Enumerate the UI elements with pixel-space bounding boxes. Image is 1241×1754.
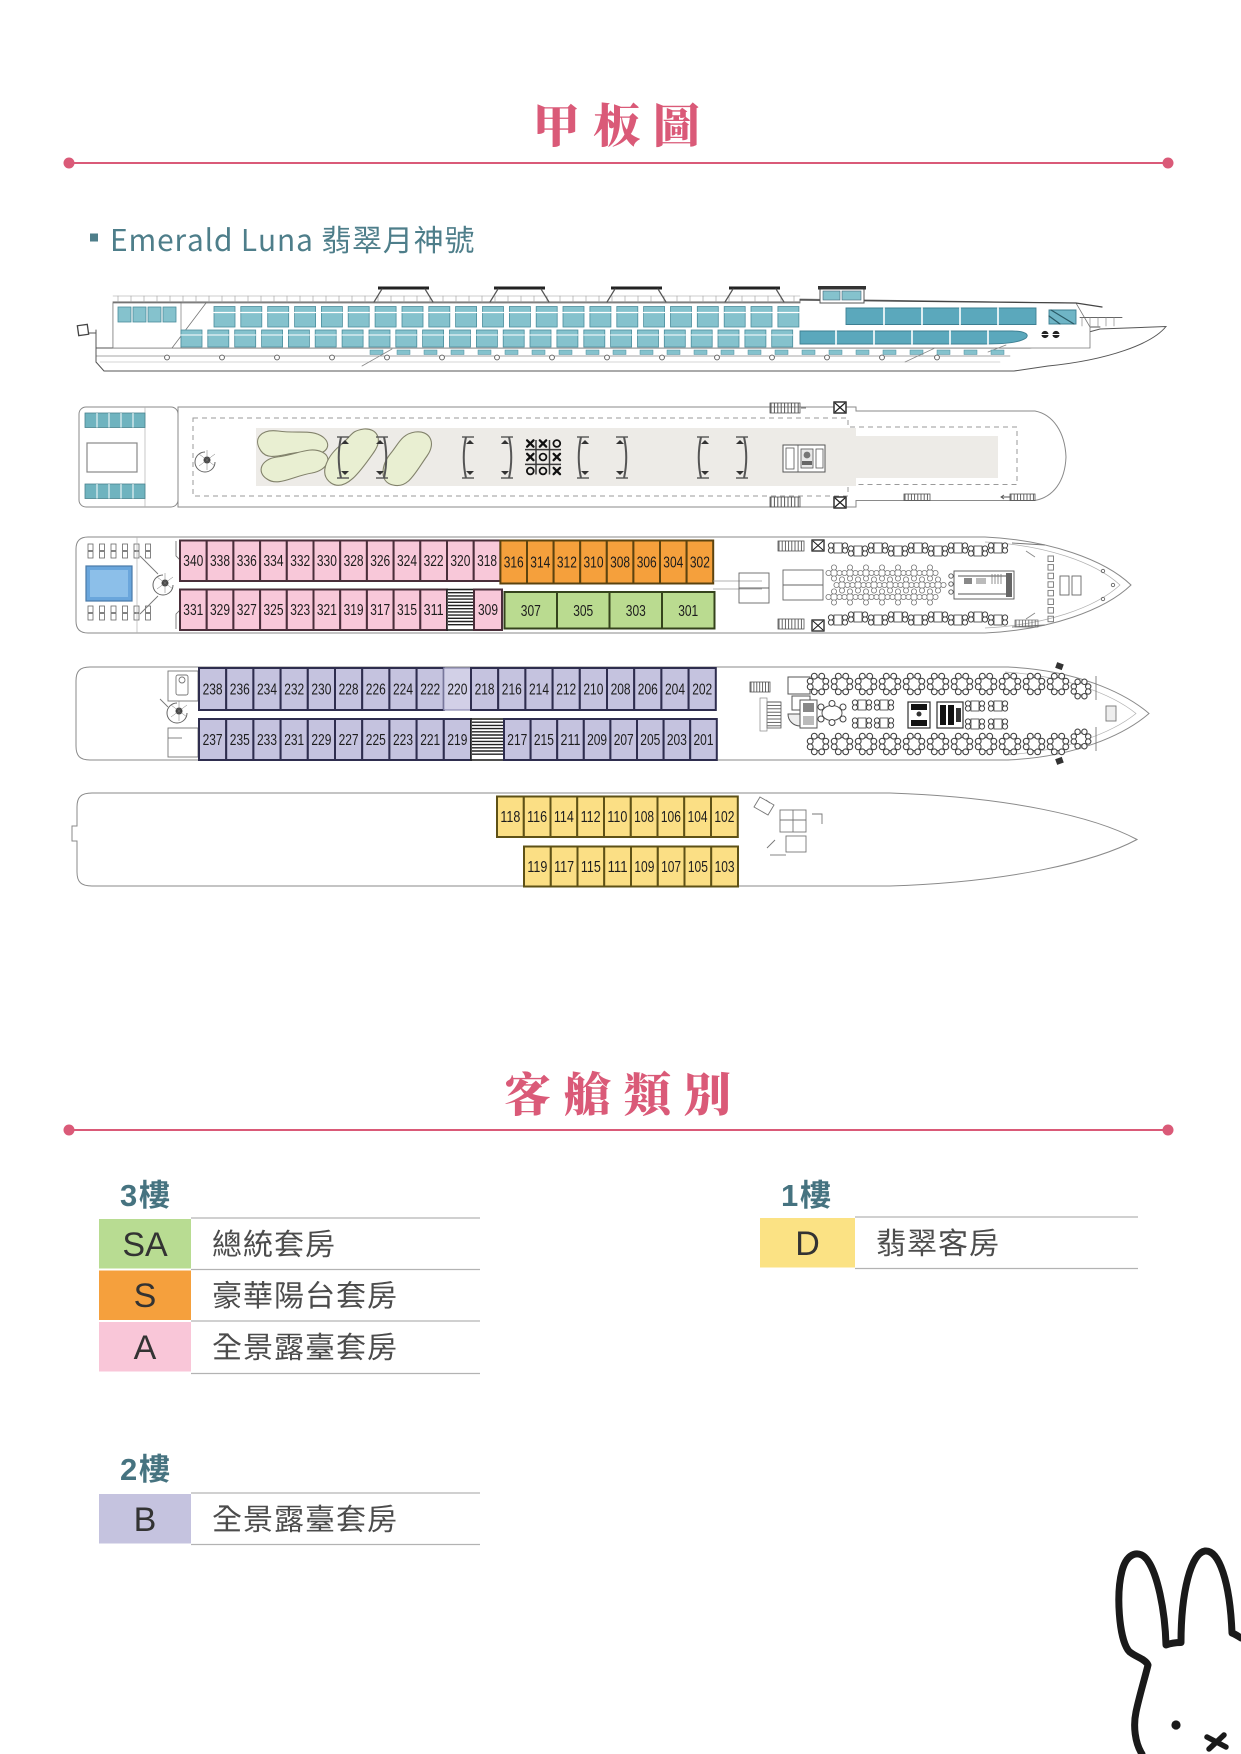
svg-text:321: 321 [317,602,337,619]
svg-text:207: 207 [614,732,634,749]
svg-text:109: 109 [634,859,654,876]
svg-text:226: 226 [366,682,386,699]
svg-text:237: 237 [203,732,223,749]
svg-text:301: 301 [678,603,698,620]
svg-text:332: 332 [290,553,310,570]
svg-text:115: 115 [581,859,601,876]
svg-text:112: 112 [581,809,601,826]
svg-text:228: 228 [339,682,359,699]
svg-text:232: 232 [284,682,304,699]
svg-text:209: 209 [587,732,607,749]
svg-text:223: 223 [393,732,413,749]
svg-text:3: 3 [120,1178,137,1213]
svg-text:336: 336 [237,553,257,570]
svg-text:208: 208 [611,682,631,699]
svg-text:S: S [134,1277,157,1315]
svg-text:D: D [795,1225,820,1263]
svg-text:307: 307 [521,603,541,620]
svg-text:323: 323 [290,602,310,619]
svg-text:326: 326 [370,553,390,570]
svg-text:318: 318 [477,553,497,570]
svg-text:212: 212 [556,682,576,699]
svg-text:SA: SA [122,1226,168,1264]
svg-text:A: A [134,1329,157,1367]
svg-text:314: 314 [530,555,550,572]
svg-text:320: 320 [450,553,470,570]
svg-text:215: 215 [534,732,554,749]
svg-text:328: 328 [344,553,364,570]
svg-text:224: 224 [393,682,413,699]
svg-text:222: 222 [420,682,440,699]
svg-text:325: 325 [264,602,284,619]
svg-text:234: 234 [257,682,277,699]
svg-text:1: 1 [781,1178,798,1213]
svg-text:104: 104 [688,809,708,826]
svg-text:304: 304 [663,555,683,572]
svg-text:311: 311 [424,602,444,619]
svg-text:230: 230 [311,682,331,699]
svg-text:229: 229 [311,732,331,749]
svg-text:111: 111 [608,859,628,876]
svg-text:102: 102 [714,809,734,826]
svg-text:2: 2 [120,1452,137,1487]
svg-text:204: 204 [665,682,685,699]
svg-text:227: 227 [339,732,359,749]
svg-text:205: 205 [640,732,660,749]
svg-text:315: 315 [397,602,417,619]
svg-text:214: 214 [529,682,549,699]
svg-text:105: 105 [688,859,708,876]
svg-text:308: 308 [610,555,630,572]
svg-text:330: 330 [317,553,337,570]
svg-text:235: 235 [230,732,250,749]
svg-text:220: 220 [447,682,467,699]
svg-text:231: 231 [284,732,304,749]
svg-text:303: 303 [626,603,646,620]
svg-text:B: B [134,1501,157,1539]
svg-text:225: 225 [366,732,386,749]
svg-text:324: 324 [397,553,417,570]
svg-text:107: 107 [661,859,681,876]
svg-text:103: 103 [715,859,735,876]
svg-text:309: 309 [478,602,498,619]
svg-text:219: 219 [447,732,467,749]
svg-text:221: 221 [420,732,440,749]
svg-text:305: 305 [573,603,593,620]
svg-text:110: 110 [607,809,627,826]
svg-text:329: 329 [210,602,230,619]
svg-text:310: 310 [584,555,604,572]
svg-text:316: 316 [504,555,524,572]
svg-text:202: 202 [692,682,712,699]
svg-text:327: 327 [237,602,257,619]
svg-text:236: 236 [230,682,250,699]
svg-text:114: 114 [554,809,574,826]
svg-text:217: 217 [507,732,527,749]
svg-text:201: 201 [694,732,714,749]
svg-text:306: 306 [637,555,657,572]
svg-text:334: 334 [264,553,284,570]
svg-text:119: 119 [527,859,547,876]
svg-text:317: 317 [370,602,390,619]
svg-text:319: 319 [344,602,364,619]
svg-text:118: 118 [500,809,520,826]
svg-text:238: 238 [203,682,223,699]
svg-text:216: 216 [502,682,522,699]
svg-text:108: 108 [634,809,654,826]
svg-text:322: 322 [424,553,444,570]
svg-text:233: 233 [257,732,277,749]
svg-text:116: 116 [527,809,547,826]
svg-text:206: 206 [638,682,658,699]
svg-text:117: 117 [554,859,574,876]
svg-text:106: 106 [661,809,681,826]
svg-text:203: 203 [667,732,687,749]
svg-text:338: 338 [210,553,230,570]
svg-text:312: 312 [557,555,577,572]
svg-text:210: 210 [583,682,603,699]
svg-text:302: 302 [690,555,710,572]
svg-text:211: 211 [561,732,581,749]
svg-text:331: 331 [183,602,203,619]
svg-text:218: 218 [475,682,495,699]
svg-text:340: 340 [183,553,203,570]
